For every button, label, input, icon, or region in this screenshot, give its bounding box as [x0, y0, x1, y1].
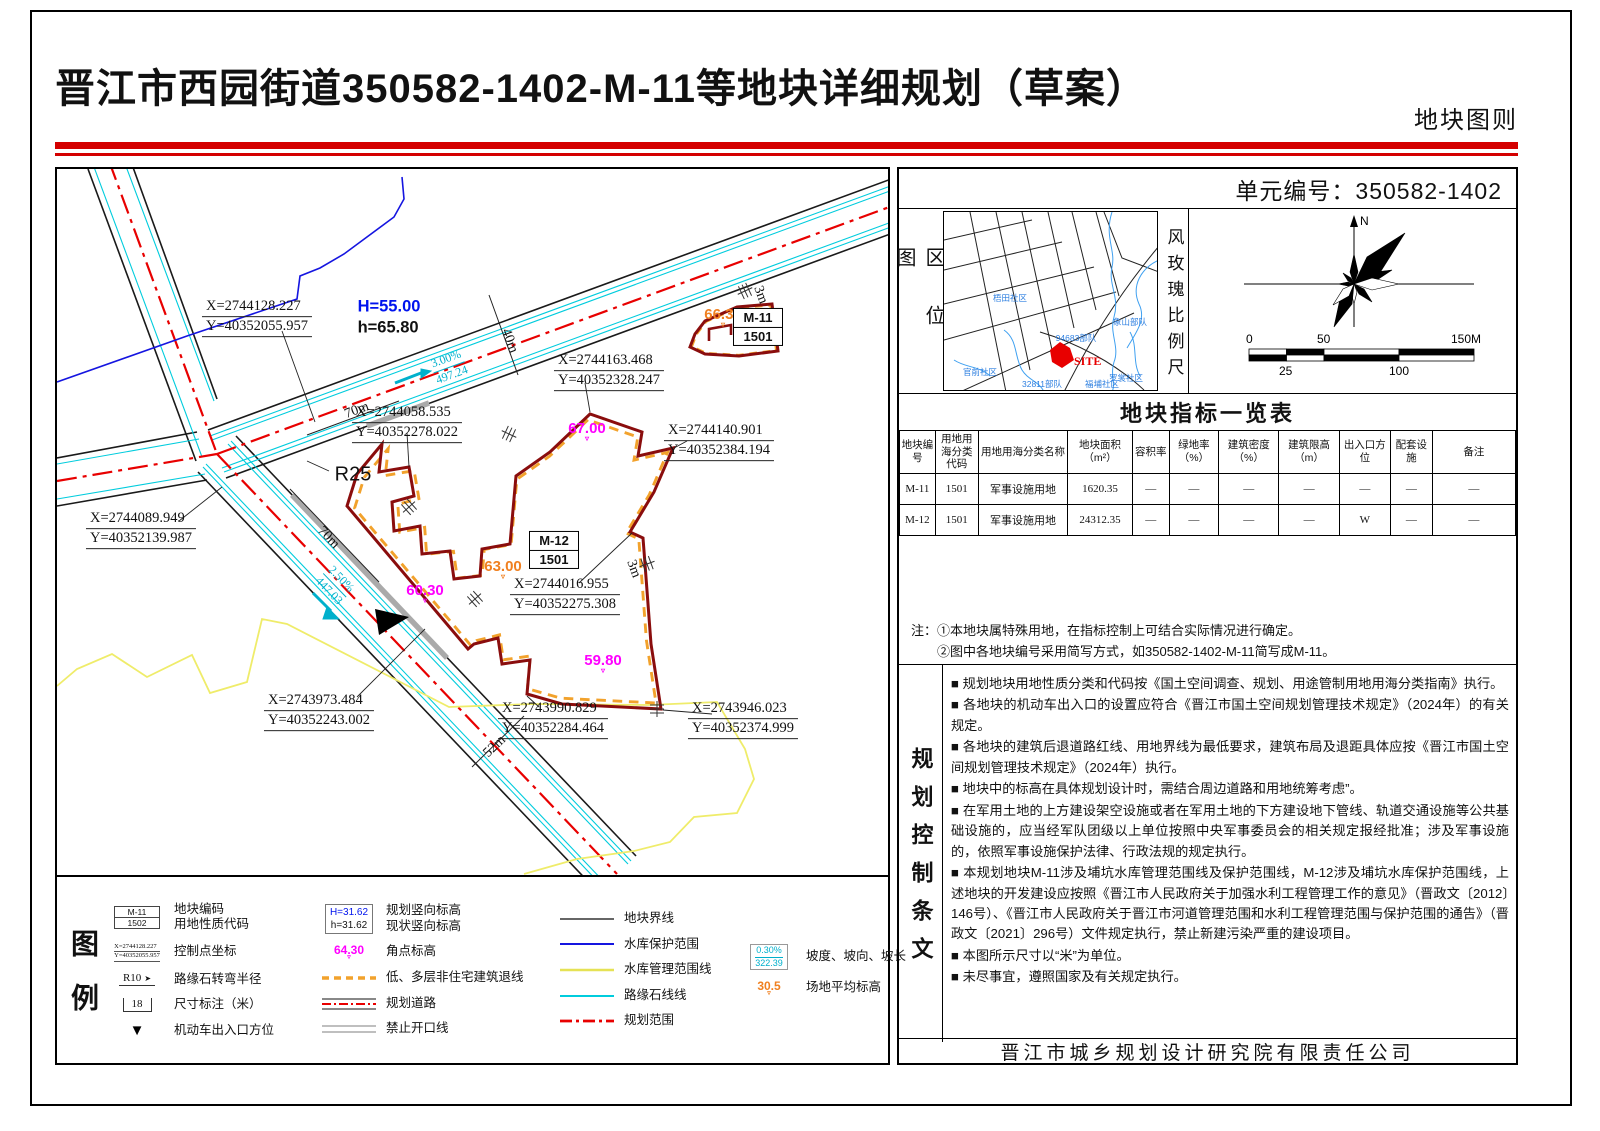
location-minimap: SITE 梧田社区94683部队象山部队罗裳社区官前社区32811部队福埔社区 [943, 211, 1158, 391]
table-cell: 军事设施用地 [978, 473, 1067, 504]
legend-item-label: 路缘石线线 [624, 988, 687, 1004]
svg-text:50: 50 [1317, 332, 1331, 346]
svg-text:100: 100 [1389, 364, 1409, 378]
legend-item-label: 角点标高 [386, 944, 436, 960]
legend-item: R10路缘石转弯半径 [109, 972, 321, 988]
legend-item-label: 规划范围 [624, 1013, 674, 1029]
map-anno-cp: X=2743973.484Y=40352243.002 [264, 691, 374, 731]
table-cell: — [1339, 473, 1390, 504]
minimap-place-label: 梧田社区 [993, 292, 1027, 304]
map-anno-cp: X=2743946.023Y=40352374.999 [688, 699, 798, 739]
legend-symbol-scope [559, 1015, 615, 1027]
legend-symbol-dim: 18 [109, 998, 165, 1012]
legend-column-2: H=31.62h=31.62规划竖向标高现状竖向标高64.30▿角点标高低、多层… [321, 877, 559, 1063]
legend-item-label: 低、多层非住宅建筑退线 [386, 970, 524, 986]
minimap-place-label: 94683部队 [1056, 332, 1097, 344]
provisions-text: ■ 规划地块用地性质分类和代码按《国土空间调查、规划、用途管制用地用海分类指南》… [951, 674, 1509, 989]
legend-symbol-corner: 30.5▿ [741, 980, 797, 996]
table-header-cell: 用地用海分类代码 [935, 431, 978, 474]
legend-item: 0.30%322.39坡度、坡向、坡长 [741, 944, 886, 970]
legend-item-label: 规划竖向标高现状竖向标高 [386, 903, 461, 934]
windrose-title: 风玫瑰比例尺 [1160, 209, 1189, 394]
legend-symbol-parcel [559, 913, 615, 925]
table-cell: — [1432, 504, 1515, 535]
legend-item: M-111502地块编码用地性质代码 [109, 902, 321, 933]
map-anno-elev: 67.00▿ [568, 421, 606, 441]
legend-item-label: 禁止开口线 [386, 1021, 449, 1037]
map-anno-elev: 59.80▿ [584, 653, 622, 673]
map-anno-dim: 3m [622, 558, 643, 580]
minimap-place-label: 象山部队 [1113, 316, 1147, 328]
provision-item: ■ 在军用土地的上方建设架空设施或者在军用土地的下方建设地下管线、轨道交通设施等… [951, 801, 1509, 862]
legend-item: 水库管理范围线 [559, 962, 741, 978]
table-header-cell: 地块编号 [900, 431, 936, 474]
table-header-cell: 出入口方位 [1339, 431, 1390, 474]
windrose-petals [1333, 233, 1405, 327]
legend-symbol-cp: X=2744128.227Y=40352055.957 [109, 943, 165, 962]
table-header-cell: 容积率 [1132, 431, 1169, 474]
map-anno-cp: X=2744016.955Y=40352275.308 [510, 575, 620, 615]
legend-item: 规划道路 [321, 996, 559, 1012]
legend-symbol-manage [559, 964, 615, 976]
legend-symbol-noopen [321, 1023, 377, 1035]
map-anno-elev: 60.30▿ [406, 583, 444, 603]
title-rule-thin [55, 153, 1518, 156]
provision-item: ■ 各地块的机动车出入口的设置应符合《晋江市国土空间规划管理技术规定》（2024… [951, 695, 1509, 736]
legend-symbol-curb [559, 990, 615, 1002]
provision-item: ■ 本规划地块M-11涉及埔坑水库管理范围线及保护范围线，M-12涉及埔坑水库保… [951, 863, 1509, 945]
provisions-divider [899, 664, 1516, 665]
map-anno-slope: 3.00%497.24 [428, 346, 470, 388]
design-institute: 晋江市城乡规划设计研究院有限责任公司 [899, 1038, 1516, 1063]
legend-item-label: 水库保护范围 [624, 937, 699, 953]
provision-item: ■ 未尽事宜，遵照国家及有关规定执行。 [951, 967, 1509, 987]
table-cell: — [1169, 504, 1218, 535]
table-cell: M-11 [900, 473, 936, 504]
legend-item: X=2744128.227Y=40352055.957控制点坐标 [109, 943, 321, 962]
legend-item: 18尺寸标注（米） [109, 997, 321, 1013]
provision-item: ■ 地块中的标高在具体规划设计时，需结合周边道路和用地统筹考虑”。 [951, 779, 1509, 799]
table-cell: — [1390, 504, 1432, 535]
windrose-svg: N [1189, 209, 1518, 392]
provisions-title: 规划控制条文 [899, 664, 943, 1042]
minimap-streets [944, 212, 1158, 391]
svg-text:0: 0 [1246, 332, 1253, 346]
legend-symbol-vert: H=31.62h=31.62 [321, 904, 377, 934]
minimap-svg [944, 212, 1158, 391]
sheet-type-label: 地块图则 [1414, 100, 1518, 135]
table-header-cell: 建筑密度（%） [1219, 431, 1279, 474]
map-anno-cp: X=2743990.829Y=40352284.464 [498, 699, 608, 739]
table-header-row: 地块编号用地用海分类代码用地用海分类名称地块面积（m²）容积率绿地率（%）建筑密… [900, 431, 1516, 474]
drawing-annotations: X=2744128.227Y=40352055.957H=55.00h=65.8… [57, 169, 888, 875]
indicator-table-title: 地块指标一览表 [899, 394, 1516, 430]
legend-item: 路缘石线线 [559, 988, 741, 1004]
table-cell: — [1432, 473, 1515, 504]
legend-item: 30.5▿场地平均标高 [741, 980, 886, 996]
legend-symbol-codebox: M-111502 [109, 906, 165, 929]
map-anno-elev: 63.00▿ [484, 559, 522, 579]
note-line: ①本地块属特殊用地，在指标控制上可结合实际情况进行确定。 [937, 623, 1301, 638]
legend-item-label: 控制点坐标 [174, 944, 237, 960]
plan-drawing: X=2744128.227Y=40352055.957H=55.00h=65.8… [57, 169, 888, 875]
note-line: ②图中各地块编号采用简写方式，如350582-1402-M-11简写成M-11。 [937, 642, 1501, 663]
legend-column-3: 地块界线水库保护范围水库管理范围线路缘石线线规划范围 [559, 877, 741, 1063]
provision-item: ■ 各地块的建筑后退道路红线、用地界线为最低要求，建筑布局及退距具体应按《晋江市… [951, 737, 1509, 778]
legend-item-label: 路缘石转弯半径 [174, 972, 262, 988]
title-rule-thick [55, 142, 1518, 149]
table-cell: — [1169, 473, 1218, 504]
notes: 注：①本地块属特殊用地，在指标控制上可结合实际情况进行确定。 ②图中各地块编号采… [911, 621, 1501, 663]
provision-item: ■ 本图所示尺寸以“米”为单位。 [951, 946, 1509, 966]
legend-symbol-setback [321, 972, 377, 984]
map-anno-slope: 2.50%447.03 [312, 562, 358, 608]
map-anno-pbox: M-111501 [733, 308, 783, 346]
minimap-place-label: 官前社区 [963, 366, 997, 378]
provision-item: ■ 规划地块用地性质分类和代码按《国土空间调查、规划、用途管制用地用海分类指南》… [951, 674, 1509, 694]
scale-bar [1249, 349, 1474, 361]
table-cell: 1620.35 [1068, 473, 1133, 504]
legend-item-label: 场地平均标高 [806, 980, 881, 996]
notes-head: 注： [911, 623, 937, 638]
legend-item: ▼机动车出入口方位 [109, 1023, 321, 1039]
legend-item: 64.30▿角点标高 [321, 944, 559, 960]
map-anno-pbox: M-121501 [529, 531, 579, 569]
table-cell: — [1279, 473, 1339, 504]
table-header-cell: 用地用海分类名称 [978, 431, 1067, 474]
legend-symbol-arrow: ▼ [109, 1023, 165, 1038]
minimap-site [1050, 342, 1074, 368]
table-header-cell: 地块面积（m²） [1068, 431, 1133, 474]
legend-symbol-slope: 0.30%322.39 [741, 944, 797, 970]
table-row: M-111501军事设施用地1620.35——————— [900, 473, 1516, 504]
legend-item-label: 地块界线 [624, 911, 674, 927]
minimap-place-label: 32811部队 [1022, 378, 1062, 390]
table-cell: — [1132, 473, 1169, 504]
legend-item: 地块界线 [559, 911, 741, 927]
legend-item-label: 地块编码用地性质代码 [174, 902, 249, 933]
legend-item-label: 规划道路 [386, 996, 436, 1012]
table-row: M-121501军事设施用地24312.35————W—— [900, 504, 1516, 535]
map-anno-dim: 70m [314, 523, 343, 552]
legend-symbol-road [321, 997, 377, 1011]
map-anno-cp: X=2744128.227Y=40352055.957 [202, 297, 312, 337]
map-anno-dim: 3m [749, 284, 770, 306]
legend-symbol-radius: R10 [109, 972, 165, 986]
minimap-place-label: 福埔社区 [1085, 378, 1119, 390]
location-map-title: 区位图 [899, 209, 939, 394]
map-anno-cp: X=2744163.468Y=40352328.247 [554, 351, 664, 391]
legend-column-4: 0.30%322.39坡度、坡向、坡长30.5▿场地平均标高 [741, 877, 886, 1063]
legend-item: 规划范围 [559, 1013, 741, 1029]
legend-title: 图例 [57, 877, 109, 1063]
legend-symbol-protect [559, 938, 615, 950]
table-header-cell: 配套设施 [1390, 431, 1432, 474]
legend-column-1: M-111502地块编码用地性质代码X=2744128.227Y=4035205… [109, 877, 321, 1063]
table-cell: — [1132, 504, 1169, 535]
table-cell: 1501 [935, 473, 978, 504]
location-row: 区位图 [899, 209, 1516, 394]
legend-item-label: 水库管理范围线 [624, 962, 712, 978]
table-cell: — [1279, 504, 1339, 535]
table-header-cell: 绿地率（%） [1169, 431, 1218, 474]
legend-item: 低、多层非住宅建筑退线 [321, 970, 559, 986]
svg-text:150M: 150M [1451, 332, 1481, 346]
plan-sheet: 晋江市西园街道350582-1402-M-11等地块详细规划（草案） 地块图则 [0, 0, 1600, 1131]
table-cell: 军事设施用地 [978, 504, 1067, 535]
legend: 图例 M-111502地块编码用地性质代码X=2744128.227Y=4035… [57, 877, 888, 1063]
table-cell: — [1390, 473, 1432, 504]
table-cell: — [1219, 504, 1279, 535]
table-header-cell: 备注 [1432, 431, 1515, 474]
map-anno-cp: X=2744140.901Y=40352384.194 [664, 421, 774, 461]
plan-drawing-panel: X=2744128.227Y=40352055.957H=55.00h=65.8… [55, 167, 890, 1065]
table-header-cell: 建筑限高（m） [1279, 431, 1339, 474]
legend-symbol-corner: 64.30▿ [321, 944, 377, 960]
table-cell: 1501 [935, 504, 978, 535]
info-panel: 单元编号：350582-1402 区位图 [897, 167, 1518, 1065]
legend-item-label: 坡度、坡向、坡长 [806, 949, 906, 965]
legend-item: 水库保护范围 [559, 937, 741, 953]
table-cell: — [1219, 473, 1279, 504]
svg-text:25: 25 [1279, 364, 1293, 378]
map-anno-label: R25 [335, 464, 372, 487]
map-anno-dim: 40m [497, 327, 521, 356]
map-anno-pair: H=55.00h=65.80 [358, 296, 421, 337]
svg-text:N: N [1360, 214, 1369, 228]
map-anno-cp: X=2744089.949Y=40352139.987 [86, 509, 196, 549]
windrose-area: N [1189, 209, 1518, 392]
legend-item: 禁止开口线 [321, 1021, 559, 1037]
table-cell: W [1339, 504, 1390, 535]
table-cell: 24312.35 [1068, 504, 1133, 535]
table-cell: M-12 [900, 504, 936, 535]
legend-item: H=31.62h=31.62规划竖向标高现状竖向标高 [321, 903, 559, 934]
indicator-table: 地块编号用地用海分类代码用地用海分类名称地块面积（m²）容积率绿地率（%）建筑密… [899, 430, 1516, 536]
unit-number: 单元编号：350582-1402 [899, 169, 1516, 209]
site-label: SITE [1074, 354, 1101, 369]
legend-item-label: 尺寸标注（米） [174, 997, 262, 1013]
page-title: 晋江市西园街道350582-1402-M-11等地块详细规划（草案） [55, 56, 1147, 114]
legend-item-label: 机动车出入口方位 [174, 1023, 274, 1039]
